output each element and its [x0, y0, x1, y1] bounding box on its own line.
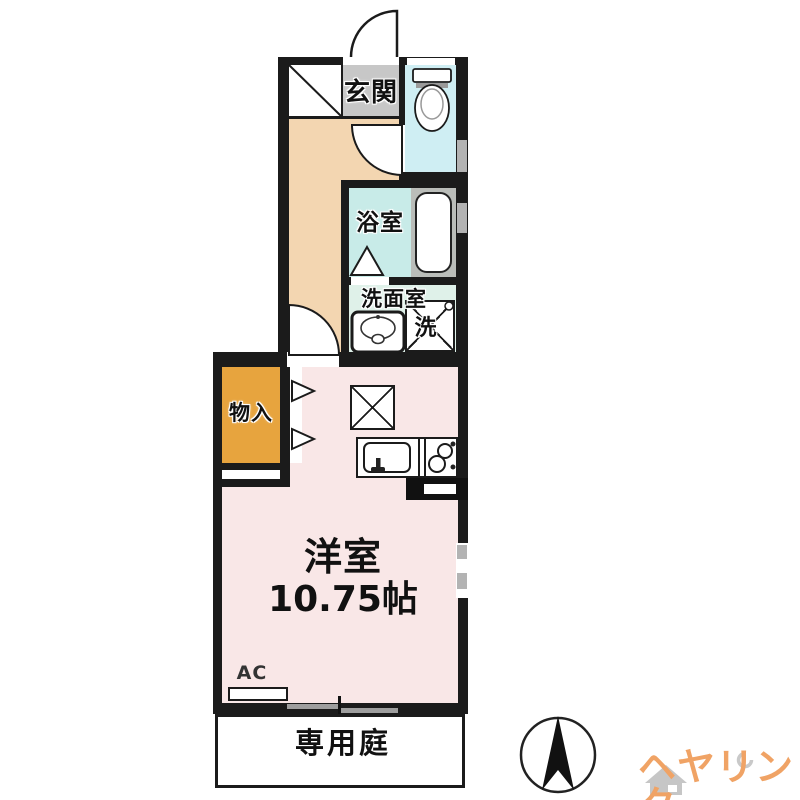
toilet-window-right	[457, 140, 467, 172]
storage-door-track	[290, 367, 302, 463]
main-room-label: 洋室	[258, 538, 428, 576]
toilet-door-opening	[399, 125, 405, 172]
main-room-window-pane	[457, 573, 467, 589]
counter-divider	[424, 437, 426, 478]
hallway-floor	[289, 119, 341, 352]
garden-sliding-door-pane	[287, 704, 339, 709]
compass-circle	[521, 718, 595, 792]
north-arrow-icon	[542, 716, 574, 790]
storage-label: 物入	[222, 403, 280, 424]
ac-unit-box	[228, 687, 288, 701]
bathtub	[415, 192, 452, 273]
main-room-size-label: 10.75帖	[258, 582, 428, 618]
washroom-label: 洗面室	[338, 289, 450, 310]
toilet-room-floor	[405, 65, 456, 172]
entrance-closet-area	[289, 65, 341, 116]
main-room-window-pane	[457, 545, 467, 559]
kitchen-lower-cabinet-slot	[424, 484, 456, 494]
garden-sliding-door-center	[338, 696, 341, 714]
bath-label: 浴室	[348, 212, 412, 235]
floorplan-canvas: 玄関 浴室 洗面室 洗 物入 洋室 10.75帖 AC 専用庭 ヘヤリンク	[0, 0, 800, 800]
toilet-window-top	[407, 58, 455, 65]
main-room-door-opening	[287, 352, 339, 367]
laundry-label: 洗	[402, 318, 450, 340]
entrance-door-opening	[343, 57, 399, 65]
garden-sliding-door-pane	[341, 708, 398, 713]
bath-window-right	[457, 203, 467, 233]
logo-text: ヘヤリンク	[638, 748, 798, 800]
garden-label: 専用庭	[268, 729, 418, 758]
hallway-upper-floor	[341, 119, 399, 180]
kitchen-sink	[363, 442, 411, 473]
storage-lower-window	[222, 470, 280, 479]
entrance-door-arc	[351, 11, 397, 57]
entrance-label: 玄関	[340, 80, 402, 106]
counter-divider	[418, 437, 420, 478]
main-room-floor-joint	[290, 463, 302, 487]
bath-door-opening	[351, 277, 389, 285]
refrigerator-space	[350, 385, 395, 430]
ac-label: AC	[230, 664, 274, 683]
